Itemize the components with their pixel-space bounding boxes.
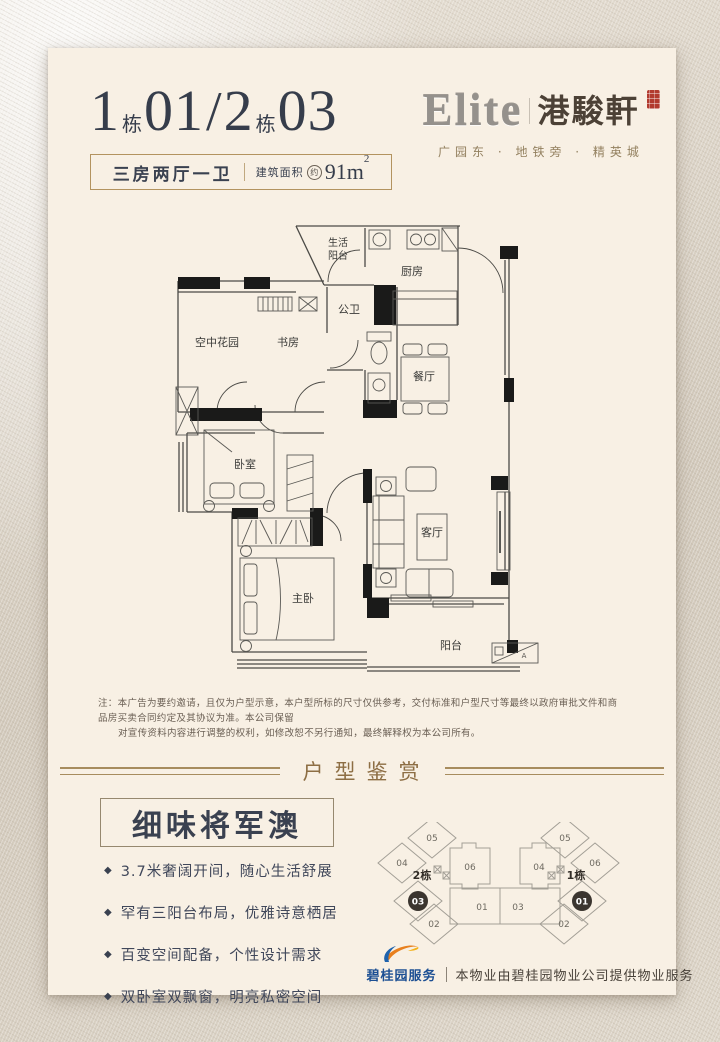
title-slash: / xyxy=(206,84,222,140)
room-label-balcony: 阳台 xyxy=(440,638,462,652)
room-label-sky-garden: 空中花园 xyxy=(195,335,239,349)
unit-number: 02 xyxy=(558,920,569,930)
unit-title: 1 栋 01 / 2 栋 03 xyxy=(90,82,338,140)
layout-spec: 三房两厅一卫 xyxy=(113,160,233,185)
red-seal-icon xyxy=(647,90,660,109)
diamond-bullet-icon: ◆ xyxy=(104,949,112,960)
feature-text: 3.7米奢阔开间，随心生活舒展 xyxy=(121,860,333,881)
spec-box: 三房两厅一卫 建筑面积 约 91m2 xyxy=(90,154,392,190)
feature-item: ◆ 3.7米奢阔开间，随心生活舒展 xyxy=(104,860,384,881)
unit-number: 06 xyxy=(589,859,601,869)
floorplan-walls xyxy=(178,226,520,671)
building1-unit: 01 xyxy=(144,82,204,140)
footer: 碧桂园服务 本物业由碧桂园物业公司提供物业服务 xyxy=(348,942,712,984)
spec-divider xyxy=(244,163,245,181)
diamond-bullet-icon: ◆ xyxy=(104,865,112,876)
building-label-right: 1栋 xyxy=(567,868,586,882)
diamond-bullet-icon: ◆ xyxy=(104,907,112,918)
brand-logo: Elite 港駿軒 xyxy=(416,88,666,133)
brand-logo-cn: 港駿軒 xyxy=(537,95,639,127)
feature-text: 双卧室双飘窗，明亮私密空间 xyxy=(121,986,323,1007)
diamond-bullet-icon: ◆ xyxy=(104,991,112,1002)
feature-item: ◆ 罕有三阳台布局，优雅诗意栖居 xyxy=(104,902,384,923)
building2-unit: 03 xyxy=(278,82,338,140)
poster-card: 1 栋 01 / 2 栋 03 三房两厅一卫 建筑面积 约 91m2 Elite… xyxy=(48,48,676,995)
divider-title: 户型鉴赏 xyxy=(294,756,431,786)
brand-logo-en: Elite xyxy=(423,88,523,133)
poster-background: { "header": { "b1_num": "1", "b1_dong": … xyxy=(0,0,720,1042)
room-label-study: 书房 xyxy=(277,336,299,349)
building1-dong: 栋 xyxy=(120,114,144,140)
brand-logo-separator xyxy=(529,98,530,124)
feature-list: ◆ 3.7米奢阔开间，随心生活舒展 ◆ 罕有三阳台布局，优雅诗意栖居 ◆ 百变空… xyxy=(104,860,384,1028)
country-garden-swoosh-icon xyxy=(381,942,421,964)
room-label-master: 主卧 xyxy=(292,592,314,605)
building2-number: 2 xyxy=(224,82,254,140)
unit-number: 06 xyxy=(464,863,476,873)
siteplan-labels: 05 04 06 02 01 03 05 06 04 02 03 01 2栋 1… xyxy=(396,834,601,930)
disclaimer-line2: 对宣传资料内容进行调整的权利，如修改恕不另行通知，最终解释权为本公司所有。 xyxy=(98,726,626,741)
unit-number: 05 xyxy=(559,834,570,844)
unit-number: 04 xyxy=(396,859,408,869)
room-label-laundry-balcony2: 阳台 xyxy=(328,249,348,262)
feature-text: 罕有三阳台布局，优雅诗意栖居 xyxy=(121,902,338,923)
room-label-laundry-balcony: 生活 xyxy=(328,236,348,249)
room-label-bedroom: 卧室 xyxy=(234,457,256,471)
feature-heading: 细味将军澳 xyxy=(132,801,302,845)
feature-item: ◆ 双卧室双飘窗，明亮私密空间 xyxy=(104,986,384,1007)
area-superscript: 2 xyxy=(364,153,370,165)
room-label-dining: 餐厅 xyxy=(413,369,435,383)
property-brand: 碧桂园服务 xyxy=(366,942,436,984)
disclaimer: 注：本广告为要约邀请，且仅为户型示意，本户型所标的尺寸仅供参考，交付标准和户型尺… xyxy=(98,696,626,741)
siteplan-outlines xyxy=(378,822,619,944)
divider-line-right xyxy=(445,767,665,775)
floorplan-labels: 生活 阳台 厨房 公卫 空中花园 书房 餐厅 卧室 主卧 客厅 阳台 A xyxy=(195,236,527,660)
unit-number: 04 xyxy=(533,863,545,873)
room-label-kitchen: 厨房 xyxy=(401,265,423,278)
brand-tagline: 广园东 · 地铁旁 · 精英城 xyxy=(416,143,666,160)
divider-line-left xyxy=(60,767,280,775)
highlighted-unit-number-left: 03 xyxy=(412,898,425,908)
feature-heading-box: 细味将军澳 xyxy=(100,798,334,847)
footer-divider xyxy=(446,967,447,982)
highlighted-unit-number-right: 01 xyxy=(576,898,589,908)
building1-number: 1 xyxy=(90,82,120,140)
area-label: 建筑面积 xyxy=(256,164,304,180)
disclaimer-line1: 注：本广告为要约邀请，且仅为户型示意，本户型所标的尺寸仅供参考，交付标准和户型尺… xyxy=(98,696,626,726)
feature-text: 百变空间配备，个性设计需求 xyxy=(121,944,323,965)
unit-number: 05 xyxy=(426,834,437,844)
section-divider: 户型鉴赏 xyxy=(60,756,664,786)
unit-number: 01 xyxy=(476,903,487,913)
room-label-living: 客厅 xyxy=(421,525,443,539)
footer-brand-name: 碧桂园服务 xyxy=(366,965,436,984)
area-value: 91m2 xyxy=(325,159,370,185)
feature-item: ◆ 百变空间配备，个性设计需求 xyxy=(104,944,384,965)
unit-number: 03 xyxy=(512,903,523,913)
building2-dong: 栋 xyxy=(254,114,278,140)
siteplan-diagram: 05 04 06 02 01 03 05 06 04 02 03 01 2栋 1… xyxy=(372,822,657,962)
ac-platform-mark: A xyxy=(522,652,527,660)
floorplan-diagram: 生活 阳台 厨房 公卫 空中花园 书房 餐厅 卧室 主卧 客厅 阳台 A xyxy=(160,215,580,695)
unit-number: 02 xyxy=(428,920,439,930)
room-label-bath: 公卫 xyxy=(338,303,360,316)
footer-service-text: 本物业由碧桂园物业公司提供物业服务 xyxy=(456,965,694,984)
approx-circle-icon: 约 xyxy=(307,165,322,180)
building-label-left: 2栋 xyxy=(413,868,432,882)
